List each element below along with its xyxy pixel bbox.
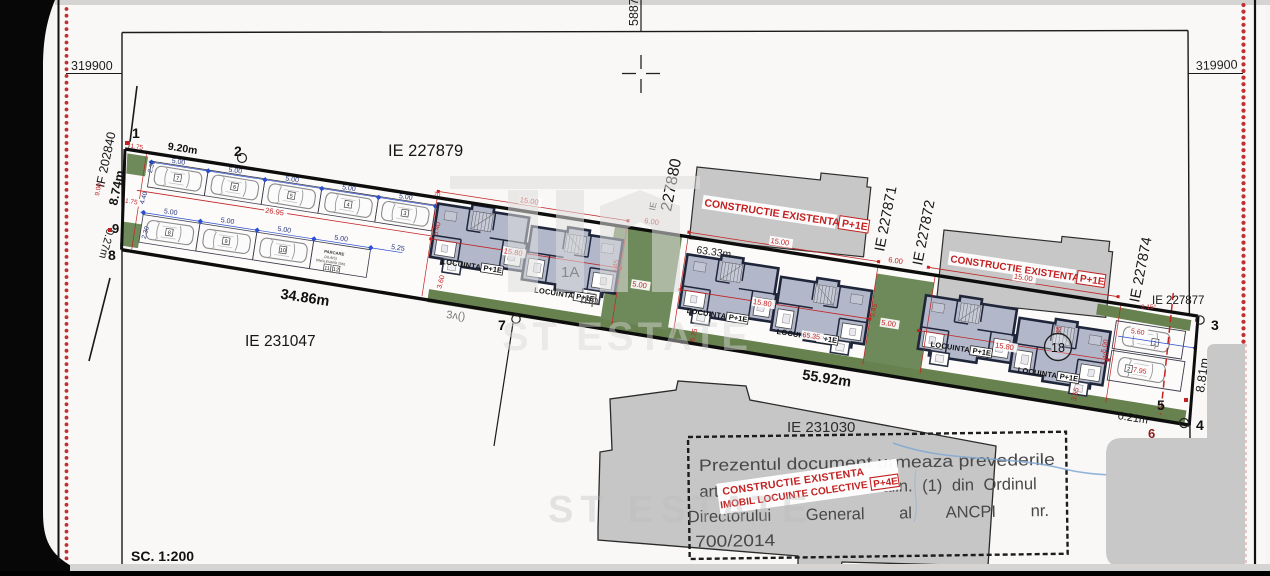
svg-text:mp: mp [580, 291, 600, 308]
svg-text:11: 11 [324, 266, 331, 273]
svg-text:SC. 1:200: SC. 1:200 [131, 548, 194, 564]
svg-text:IE 231030: IE 231030 [787, 419, 855, 436]
svg-text:10: 10 [279, 248, 286, 255]
svg-text:alin. (1) din Ordinul: alin. (1) din Ordinul [882, 475, 1037, 496]
svg-text:9: 9 [112, 221, 119, 236]
svg-text:3: 3 [1211, 317, 1219, 333]
svg-text:700/2014: 700/2014 [695, 532, 775, 551]
svg-text:4: 4 [1196, 417, 1204, 433]
svg-text:3ʌ(): 3ʌ() [446, 309, 466, 323]
svg-text:5: 5 [1157, 397, 1165, 413]
svg-text:319900: 319900 [71, 59, 113, 73]
svg-text:IE 227879: IE 227879 [388, 142, 463, 160]
svg-text:ST ESTATE: ST ESTATE [502, 315, 752, 359]
svg-text:12: 12 [332, 267, 339, 274]
svg-text:IE 227877: IE 227877 [1152, 295, 1204, 307]
svg-text:8: 8 [108, 247, 116, 263]
svg-text:ST ESTATE: ST ESTATE [548, 489, 814, 531]
svg-text:1: 1 [132, 125, 140, 141]
svg-text:18: 18 [1051, 341, 1065, 355]
svg-text:8.15°: 8.15° [1141, 303, 1157, 311]
svg-text:319900: 319900 [1196, 58, 1238, 73]
svg-text:IE 231047: IE 231047 [245, 333, 316, 350]
svg-text:5887: 5887 [627, 0, 641, 26]
